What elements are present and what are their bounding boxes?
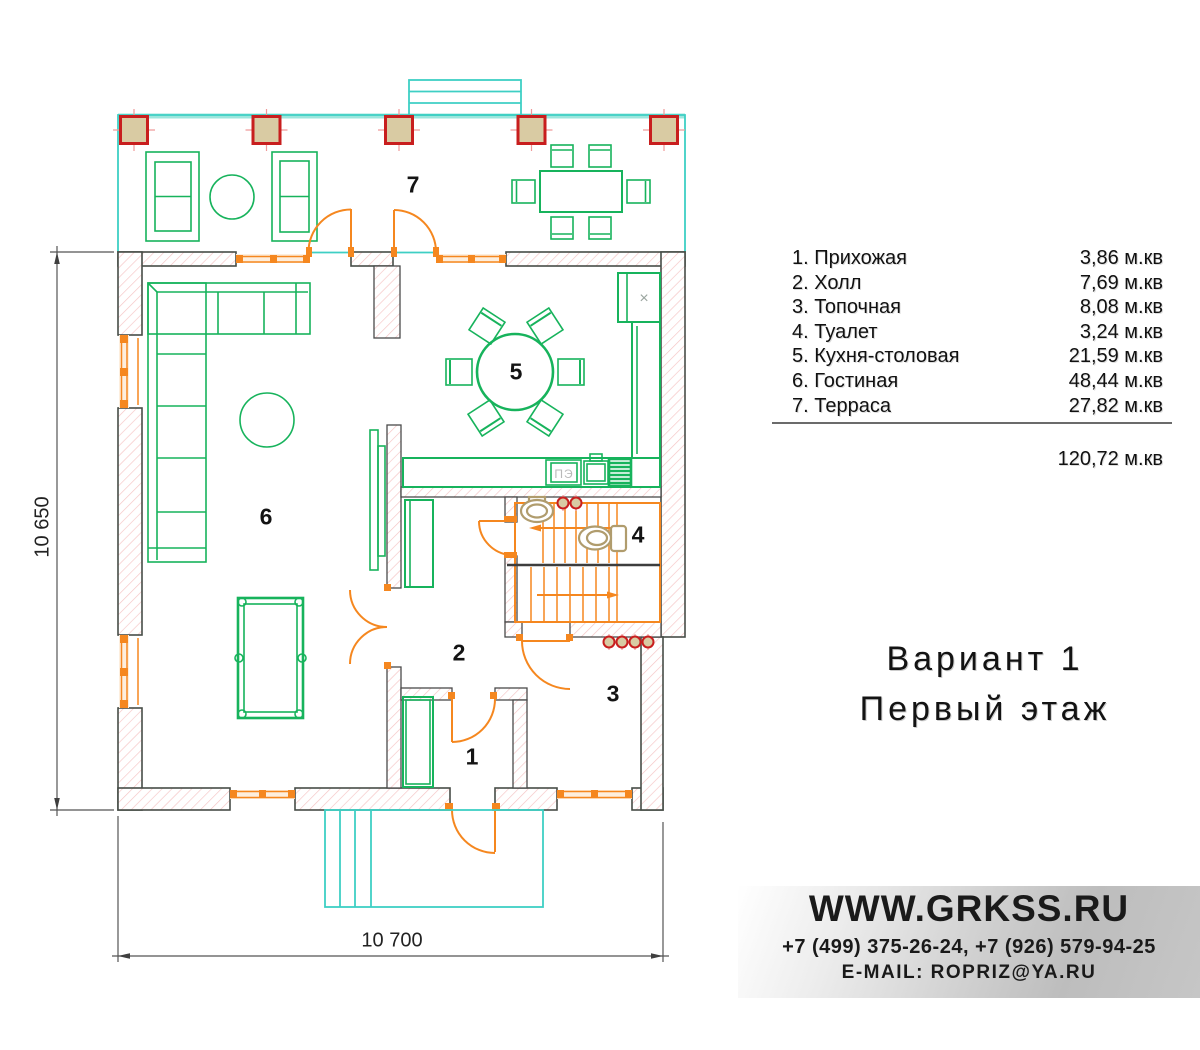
legend-rows: 1. Прихожая3,86 м.кв2. Холл7,69 м.кв3. Т… xyxy=(770,246,1163,418)
legend-room-area: 48,44 м.кв xyxy=(1069,369,1163,394)
legend-room-area: 3,24 м.кв xyxy=(1080,320,1163,345)
stove-icon: ПЭ xyxy=(546,460,581,485)
legend-room-name: 3. Топочная xyxy=(770,295,901,320)
fridge-mark: × xyxy=(639,290,648,307)
legend-room-name: 1. Прихожая xyxy=(770,246,907,271)
door-icon xyxy=(448,692,497,742)
sink-icon xyxy=(521,497,553,522)
room-label-7: 7 xyxy=(407,172,420,199)
swing-door-icon xyxy=(350,584,391,669)
website-url: WWW.GRKSS.RU xyxy=(738,888,1200,930)
legend-row: 4. Туалет3,24 м.кв xyxy=(770,320,1163,345)
legend-row: 3. Топочная8,08 м.кв xyxy=(770,295,1163,320)
sofa-icon xyxy=(146,152,199,241)
legend-room-name: 6. Гостиная xyxy=(770,369,898,394)
fridge-icon: × xyxy=(618,273,660,322)
legend-row: 5. Кухня-столовая21,59 м.кв xyxy=(770,344,1163,369)
porch xyxy=(325,810,543,907)
room-label-1: 1 xyxy=(466,744,479,771)
round-table-icon xyxy=(210,175,254,219)
legend-total: 120,72 м.кв xyxy=(770,448,1163,471)
legend-row: 7. Терраса27,82 м.кв xyxy=(770,394,1163,419)
stove-label: ПЭ xyxy=(554,467,573,481)
billiard-table-icon xyxy=(235,598,306,718)
legend-room-name: 4. Туалет xyxy=(770,320,878,345)
door-icon xyxy=(516,634,573,689)
window-icon xyxy=(557,790,632,799)
legend-room-area: 27,82 м.кв xyxy=(1069,394,1163,419)
title-line1: Вариант 1 xyxy=(775,640,1195,679)
contact-block: WWW.GRKSS.RU +7 (499) 375-26-24, +7 (926… xyxy=(738,886,1200,998)
email-address: E-MAIL: ROPRIZ@YA.RU xyxy=(738,962,1200,984)
dining-set-icon xyxy=(512,145,650,239)
page: × ПЭ xyxy=(0,0,1200,1050)
doors xyxy=(306,209,573,853)
sofa-icon xyxy=(272,152,317,241)
toilet-icon xyxy=(579,526,626,551)
tv-icon xyxy=(370,430,385,570)
window-icon xyxy=(119,335,138,408)
corner-sofa-icon xyxy=(148,283,310,562)
legend-divider xyxy=(772,422,1172,424)
dimension-width: 10 700 xyxy=(361,930,422,953)
room-label-3: 3 xyxy=(607,681,620,708)
coffee-table-icon xyxy=(240,393,294,447)
room-legend: 1. Прихожая3,86 м.кв2. Холл7,69 м.кв3. Т… xyxy=(770,246,1163,418)
window-icon xyxy=(230,790,295,799)
title-block: Вариант 1 Первый этаж xyxy=(775,640,1195,729)
dimension-lines xyxy=(50,246,669,962)
legend-row: 1. Прихожая3,86 м.кв xyxy=(770,246,1163,271)
legend-row: 2. Холл7,69 м.кв xyxy=(770,271,1163,296)
legend-room-area: 8,08 м.кв xyxy=(1080,295,1163,320)
room-label-4: 4 xyxy=(632,522,645,549)
legend-room-area: 3,86 м.кв xyxy=(1080,246,1163,271)
wardrobe-icon xyxy=(403,697,433,787)
phone-numbers: +7 (499) 375-26-24, +7 (926) 579-94-25 xyxy=(738,936,1200,959)
legend-room-name: 2. Холл xyxy=(770,271,861,296)
room-label-5: 5 xyxy=(510,359,523,386)
legend-room-area: 7,69 м.кв xyxy=(1080,271,1163,296)
legend-room-area: 21,59 м.кв xyxy=(1069,344,1163,369)
chair-icon xyxy=(558,359,584,385)
legend-room-name: 5. Кухня-столовая xyxy=(770,344,959,369)
room-label-6: 6 xyxy=(260,504,273,531)
legend-row: 6. Гостиная48,44 м.кв xyxy=(770,369,1163,394)
legend-room-name: 7. Терраса xyxy=(770,394,891,419)
window-icon xyxy=(436,254,506,263)
terrace-steps-icon xyxy=(409,80,521,115)
window-icon xyxy=(119,635,138,708)
room-label-2: 2 xyxy=(453,640,466,667)
terrace-furniture xyxy=(146,145,650,241)
kitchen-furniture: × ПЭ xyxy=(403,273,660,487)
dimension-height: 10 650 xyxy=(32,496,55,557)
door-icon xyxy=(306,209,439,257)
hall-cabinet-icon xyxy=(405,500,433,587)
window-icon xyxy=(236,254,310,263)
title-line2: Первый этаж xyxy=(775,690,1195,729)
chair-icon xyxy=(446,359,472,385)
dishwasher-icon xyxy=(609,459,631,486)
